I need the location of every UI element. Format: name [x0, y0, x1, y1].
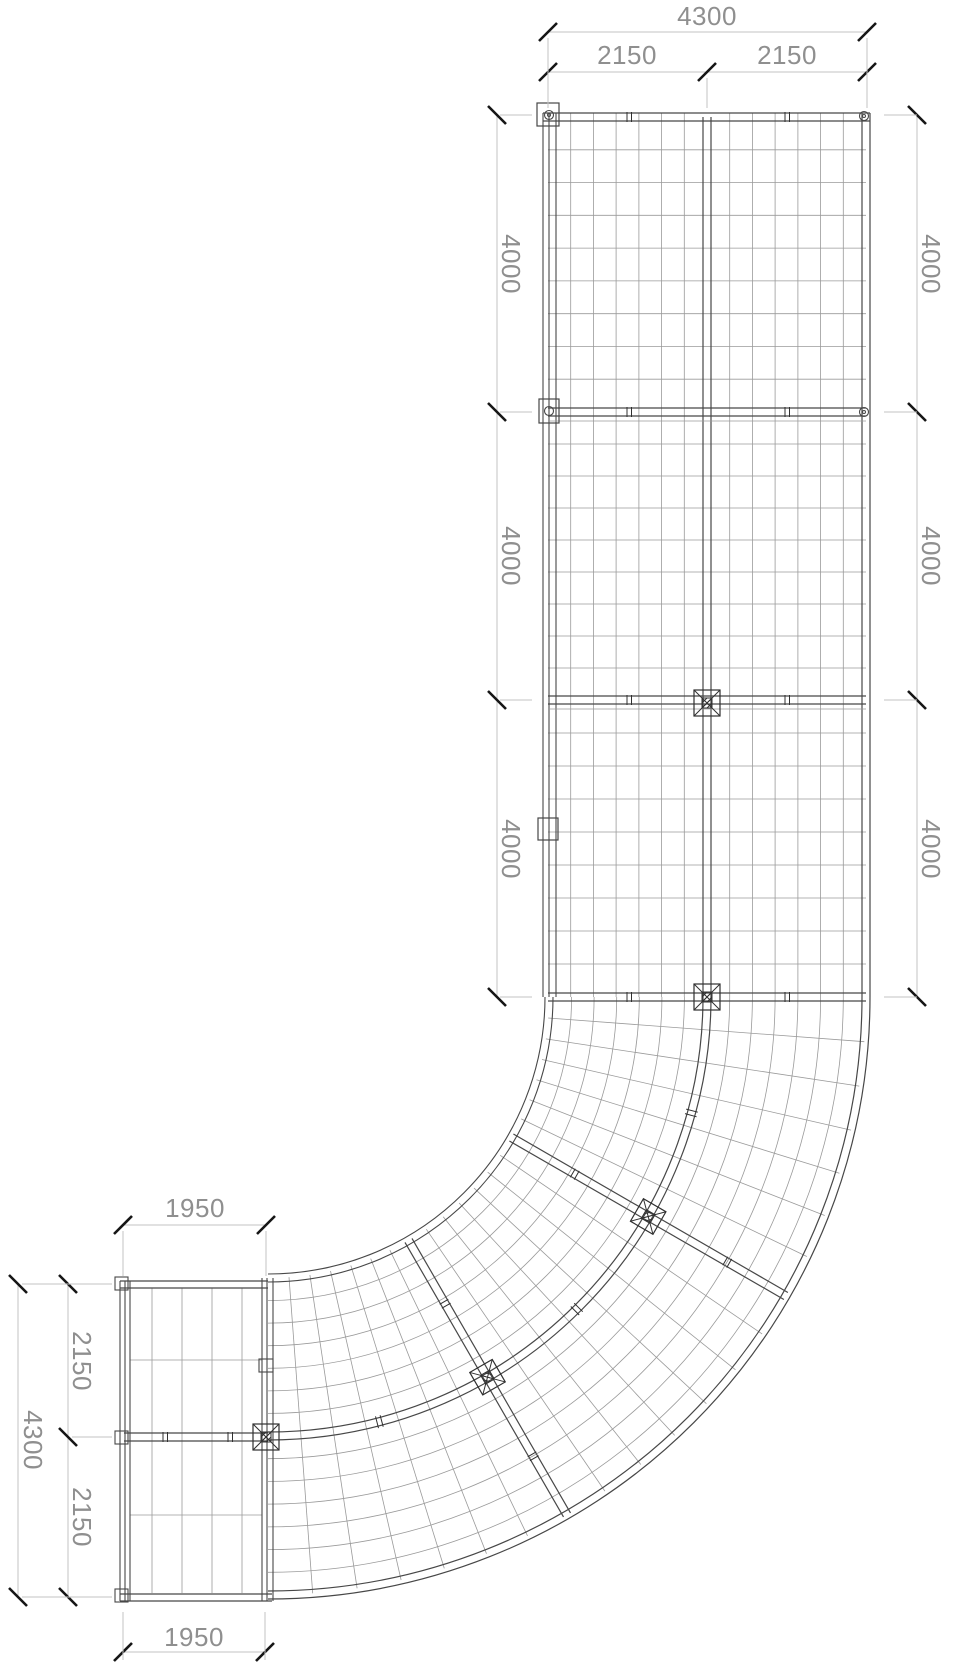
plan-drawing-canvas: 4300 2150 2150 4000 4000 4000 4000 4000 … — [0, 0, 960, 1665]
annex-plates — [115, 1277, 273, 1602]
column-node — [694, 690, 720, 716]
dim-top-total: 4300 — [677, 1, 737, 31]
dim-left-bay-3: 4000 — [496, 819, 526, 879]
dim-top-seg-2: 2150 — [757, 40, 817, 70]
dim-left-bay-2: 4000 — [496, 526, 526, 586]
column-node — [694, 984, 720, 1010]
column-node — [253, 1424, 279, 1450]
structure-linework — [115, 103, 870, 1602]
dim-annex-top: 1950 — [165, 1193, 225, 1223]
dim-left-bay-1: 4000 — [496, 234, 526, 294]
dim-right-bay-2: 4000 — [916, 526, 946, 586]
pin-joint — [860, 112, 869, 417]
dimension-linework — [9, 23, 926, 1661]
dim-right-bay-1: 4000 — [916, 234, 946, 294]
dim-annex-bottom: 1950 — [164, 1622, 224, 1652]
dim-annex-left-total: 4300 — [18, 1410, 48, 1470]
dim-right-bay-3: 4000 — [916, 819, 946, 879]
dim-annex-left-seg-1: 2150 — [67, 1331, 97, 1391]
dim-top-seg-1: 2150 — [597, 40, 657, 70]
edge-plate — [538, 818, 558, 840]
dim-annex-left-seg-2: 2150 — [67, 1487, 97, 1547]
dimension-labels: 4300 2150 2150 4000 4000 4000 4000 4000 … — [18, 1, 946, 1652]
